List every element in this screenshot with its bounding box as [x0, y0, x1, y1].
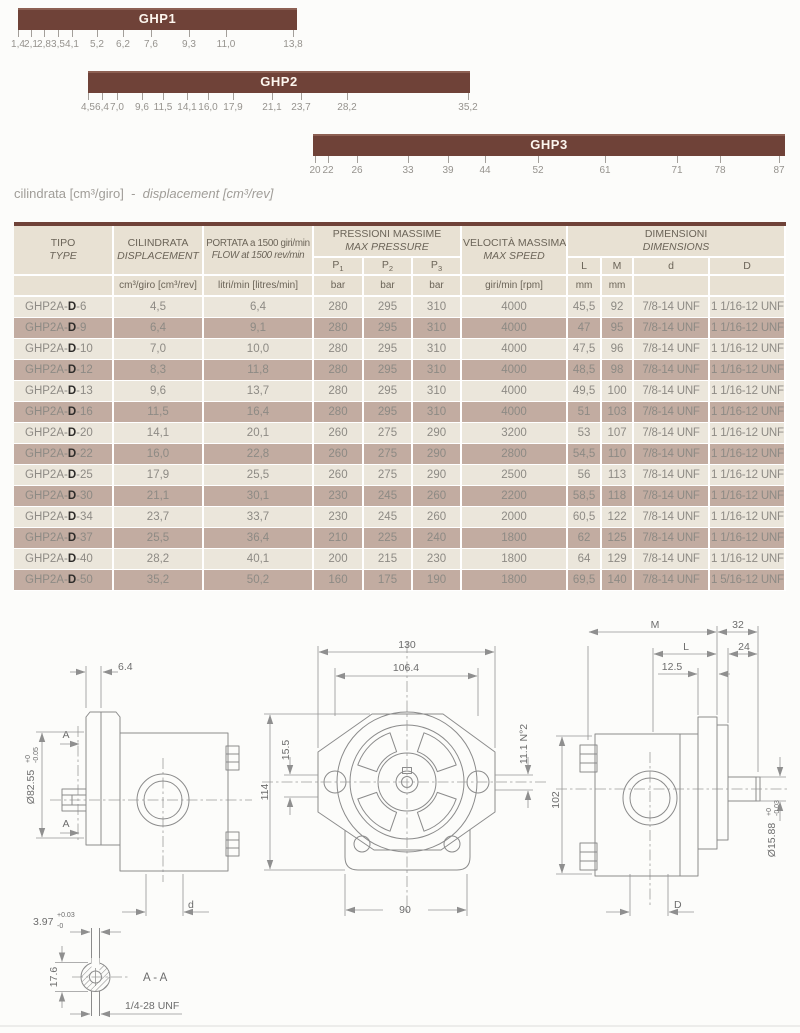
- cell-type: GHP2A-D-34: [14, 507, 114, 528]
- cell-flow: 16,4: [204, 402, 314, 423]
- spec-row-37: GHP2A-D-3725,536,42102252401800621257/8-…: [14, 528, 786, 549]
- cell-D: 1 1/16-12 UNF: [710, 297, 786, 318]
- cell-speed: 4000: [462, 297, 568, 318]
- cell-p1: 260: [314, 465, 364, 486]
- cell-disp: 4,5: [114, 297, 204, 318]
- header-cilindrata: CILINDRATADISPLACEMENT: [114, 226, 204, 276]
- cell-p1: 280: [314, 381, 364, 402]
- cell-p2: 245: [364, 486, 413, 507]
- ghp2-tick: [88, 93, 89, 100]
- cell-p2: 295: [364, 381, 413, 402]
- ghp2-tick: [142, 93, 143, 100]
- spec-row-40: GHP2A-D-4028,240,12002152301800641297/8-…: [14, 549, 786, 570]
- cell-disp: 23,7: [114, 507, 204, 528]
- cell-type: GHP2A-D-40: [14, 549, 114, 570]
- svg-text:Ø15.88: Ø15.88: [766, 823, 778, 858]
- svg-text:-0: -0: [57, 923, 63, 930]
- unit-M: mm: [602, 276, 634, 297]
- cell-p3: 260: [413, 486, 462, 507]
- header-tipo: TIPOTYPE: [14, 226, 114, 276]
- dim-15-5: 15.5: [280, 740, 292, 761]
- ghp2-tick: [187, 93, 188, 100]
- cell-p1: 230: [314, 486, 364, 507]
- ghp1-tick: [189, 30, 190, 37]
- cell-L: 69,5: [568, 570, 602, 591]
- ghp2-tick-label: 21,1: [262, 102, 281, 113]
- cell-type: GHP2A-D-12: [14, 360, 114, 381]
- ghp1-tick-label: 11,0: [217, 39, 236, 50]
- cell-M: 98: [602, 360, 634, 381]
- unit-empty-d: [634, 276, 710, 297]
- unit-velocita: giri/min [rpm]: [462, 276, 568, 297]
- ghp3-tick-label: 52: [532, 165, 543, 176]
- dim-3-97-label: 3.97: [33, 916, 54, 928]
- ghp3-tick-label: 71: [671, 165, 682, 176]
- cell-disp: 8,3: [114, 360, 204, 381]
- technical-drawings: A A 6.4 Ø82.55 +0 -0.05 d: [0, 612, 800, 1033]
- cell-flow: 22,8: [204, 444, 314, 465]
- ghp3-tick-label: 61: [599, 165, 610, 176]
- spec-row-20: GHP2A-D-2014,120,12602752903200531077/8-…: [14, 423, 786, 444]
- svg-text:+0.03: +0.03: [57, 912, 75, 919]
- cell-speed: 2500: [462, 465, 568, 486]
- ghp1-tick-label: 4,1: [65, 39, 79, 50]
- ghp1-tick-label: 9,3: [182, 39, 196, 50]
- ghp3-bar-title: GHP3: [313, 137, 785, 152]
- ghp1-tick: [58, 30, 59, 37]
- ghp1-tick-label: 6,2: [116, 39, 130, 50]
- cell-p1: 280: [314, 360, 364, 381]
- cell-p3: 310: [413, 360, 462, 381]
- cell-type: GHP2A-D-20: [14, 423, 114, 444]
- ghp1-tick: [226, 30, 227, 37]
- ghp1-range-bar: GHP1: [18, 8, 297, 30]
- ghp3-tick: [357, 156, 358, 163]
- cell-disp: 7,0: [114, 339, 204, 360]
- unit-p2: bar: [364, 276, 413, 297]
- cell-d: 7/8-14 UNF: [634, 381, 710, 402]
- cell-p3: 290: [413, 444, 462, 465]
- cell-p2: 275: [364, 465, 413, 486]
- ghp2-tick-label: 28,2: [337, 102, 356, 113]
- dim-130-label: 130: [398, 639, 416, 651]
- header-portata: PORTATA a 1500 giri/minFLOW at 1500 rev/…: [204, 226, 314, 276]
- ghp2-tick-label: 35,2: [458, 102, 477, 113]
- section-label-a-bottom: A: [62, 818, 69, 830]
- ghp1-tick-label: 7,6: [144, 39, 158, 50]
- ghp1-tick-label: 2,1: [24, 39, 38, 50]
- cell-p2: 275: [364, 444, 413, 465]
- cell-L: 49,5: [568, 381, 602, 402]
- cell-D: 1 1/16-12 UNF: [710, 360, 786, 381]
- dim-17-6: 17.6: [48, 967, 60, 988]
- ghp3-tick-label: 39: [442, 165, 453, 176]
- cell-type: GHP2A-D-16: [14, 402, 114, 423]
- cell-L: 54,5: [568, 444, 602, 465]
- ghp1-tick: [44, 30, 45, 37]
- ghp1-tick: [18, 30, 19, 37]
- section-title: A - A: [143, 972, 168, 984]
- cell-speed: 4000: [462, 360, 568, 381]
- cell-L: 64: [568, 549, 602, 570]
- cell-speed: 1800: [462, 570, 568, 591]
- cell-L: 60,5: [568, 507, 602, 528]
- pump-front-view: 130 106.4 15.5 114: [259, 639, 548, 916]
- cell-disp: 11,5: [114, 402, 204, 423]
- cell-disp: 6,4: [114, 318, 204, 339]
- spec-row-6: GHP2A-D-64,56,4280295310400045,5927/8-14…: [14, 297, 786, 318]
- cell-flow: 10,0: [204, 339, 314, 360]
- cell-type: GHP2A-D-22: [14, 444, 114, 465]
- cell-d: 7/8-14 UNF: [634, 507, 710, 528]
- ghp2-tick: [347, 93, 348, 100]
- cell-type: GHP2A-D-6: [14, 297, 114, 318]
- thread-label: 1/4-28 UNF: [125, 1000, 179, 1012]
- header-p3: P3: [413, 258, 462, 276]
- ghp2-tick-label: 14,1: [177, 102, 196, 113]
- cell-M: 129: [602, 549, 634, 570]
- cell-M: 107: [602, 423, 634, 444]
- header-pressioni: PRESSIONI MASSIMEMAX PRESSURE: [314, 226, 462, 258]
- cell-p1: 280: [314, 402, 364, 423]
- cell-M: 92: [602, 297, 634, 318]
- ghp3-tick-label: 22: [322, 165, 333, 176]
- cell-M: 100: [602, 381, 634, 402]
- header-p2: P2: [364, 258, 413, 276]
- cell-speed: 4000: [462, 339, 568, 360]
- dim-24-label: 24: [738, 641, 750, 653]
- cell-flow: 9,1: [204, 318, 314, 339]
- cell-L: 56: [568, 465, 602, 486]
- cell-d: 7/8-14 UNF: [634, 444, 710, 465]
- spec-table: TIPOTYPE CILINDRATADISPLACEMENT PORTATA …: [14, 222, 786, 591]
- ghp2-tick: [117, 93, 118, 100]
- cell-type: GHP2A-D-37: [14, 528, 114, 549]
- caption-italian: cilindrata [cm³/giro]: [14, 186, 124, 201]
- cell-d: 7/8-14 UNF: [634, 528, 710, 549]
- cell-disp: 25,5: [114, 528, 204, 549]
- ghp3-tick-label: 44: [479, 165, 490, 176]
- unit-portata: litri/min [litres/min]: [204, 276, 314, 297]
- cell-p3: 230: [413, 549, 462, 570]
- ghp3-tick: [315, 156, 316, 163]
- ghp3-tick-label: 20: [309, 165, 320, 176]
- cell-p1: 230: [314, 507, 364, 528]
- cell-p2: 175: [364, 570, 413, 591]
- cell-d: 7/8-14 UNF: [634, 423, 710, 444]
- svg-text:102: 102: [550, 791, 562, 809]
- ghp1-tick: [31, 30, 32, 37]
- cell-L: 51: [568, 402, 602, 423]
- cell-flow: 6,4: [204, 297, 314, 318]
- ghp1-tick-label: 5,2: [90, 39, 104, 50]
- ghp2-tick: [301, 93, 302, 100]
- cell-p2: 295: [364, 318, 413, 339]
- ghp1-tick: [97, 30, 98, 37]
- cell-L: 58,5: [568, 486, 602, 507]
- cell-p1: 160: [314, 570, 364, 591]
- cell-type: GHP2A-D-13: [14, 381, 114, 402]
- dim-M-label: M: [651, 619, 660, 631]
- cell-L: 53: [568, 423, 602, 444]
- caption-separator: -: [127, 186, 142, 201]
- cell-speed: 4000: [462, 318, 568, 339]
- ghp2-tick: [208, 93, 209, 100]
- cell-L: 45,5: [568, 297, 602, 318]
- ghp2-tick: [233, 93, 234, 100]
- cell-L: 48,5: [568, 360, 602, 381]
- dim-102: 102: [550, 791, 562, 809]
- header-D: D: [710, 258, 786, 276]
- cell-speed: 3200: [462, 423, 568, 444]
- cell-type: GHP2A-D-25: [14, 465, 114, 486]
- cell-D: 1 5/16-12 UNF: [710, 570, 786, 591]
- cell-p2: 245: [364, 507, 413, 528]
- unit-p1: bar: [314, 276, 364, 297]
- cell-L: 62: [568, 528, 602, 549]
- cell-p2: 295: [364, 297, 413, 318]
- cell-p1: 260: [314, 423, 364, 444]
- cell-flow: 25,5: [204, 465, 314, 486]
- spec-row-16: GHP2A-D-1611,516,42802953104000511037/8-…: [14, 402, 786, 423]
- cell-flow: 40,1: [204, 549, 314, 570]
- svg-text:11.1 N°2: 11.1 N°2: [518, 724, 530, 764]
- ghp1-tick: [151, 30, 152, 37]
- cell-M: 113: [602, 465, 634, 486]
- cell-M: 125: [602, 528, 634, 549]
- dim-dia-15-88: Ø15.88 +0 -0.03: [766, 800, 781, 857]
- spec-row-34: GHP2A-D-3423,733,7230245260200060,51227/…: [14, 507, 786, 528]
- cell-disp: 17,9: [114, 465, 204, 486]
- svg-text:-0.03: -0.03: [774, 800, 781, 816]
- section-label-a-top: A: [62, 729, 69, 741]
- cell-type: GHP2A-D-10: [14, 339, 114, 360]
- ghp1-tick-label: 1,4: [11, 39, 25, 50]
- header-d: d: [634, 258, 710, 276]
- cell-M: 95: [602, 318, 634, 339]
- dim-12-5-label: 12.5: [662, 661, 683, 673]
- header-p1: P1: [314, 258, 364, 276]
- cell-p3: 310: [413, 381, 462, 402]
- cell-flow: 11,8: [204, 360, 314, 381]
- cell-p2: 215: [364, 549, 413, 570]
- ghp3-tick: [720, 156, 721, 163]
- dim-L-label: L: [683, 641, 689, 653]
- cell-D: 1 1/16-12 UNF: [710, 402, 786, 423]
- unit-cilindrata: cm³/giro [cm³/rev]: [114, 276, 204, 297]
- cell-D: 1 1/16-12 UNF: [710, 465, 786, 486]
- cell-p3: 310: [413, 297, 462, 318]
- cell-p3: 310: [413, 318, 462, 339]
- spec-row-9: GHP2A-D-96,49,1280295310400047957/8-14 U…: [14, 318, 786, 339]
- cell-M: 96: [602, 339, 634, 360]
- cell-D: 1 1/16-12 UNF: [710, 381, 786, 402]
- cell-d: 7/8-14 UNF: [634, 339, 710, 360]
- dim-90-label: 90: [399, 904, 411, 916]
- pump-side-view-left: A A 6.4 Ø82.55 +0 -0.05 d: [25, 661, 252, 916]
- ghp2-tick: [272, 93, 273, 100]
- ghp1-tick-label: 2,8: [37, 39, 51, 50]
- cell-disp: 35,2: [114, 570, 204, 591]
- header-M: M: [602, 258, 634, 276]
- cell-flow: 36,4: [204, 528, 314, 549]
- ghp1-tick: [293, 30, 294, 37]
- displacement-range-bars: GHP11,42,12,83,54,15,26,27,69,311,013,8G…: [0, 0, 800, 210]
- cell-p3: 260: [413, 507, 462, 528]
- datasheet-page: GHP11,42,12,83,54,15,26,27,69,311,013,8G…: [0, 0, 800, 1033]
- spec-row-50: GHP2A-D-5035,250,2160175190180069,51407/…: [14, 570, 786, 591]
- ghp3-tick-label: 87: [773, 165, 784, 176]
- cell-D: 1 1/16-12 UNF: [710, 486, 786, 507]
- cell-p3: 190: [413, 570, 462, 591]
- ghp2-tick-label: 7,0: [110, 102, 124, 113]
- ghp3-tick-label: 33: [402, 165, 413, 176]
- cell-disp: 28,2: [114, 549, 204, 570]
- ghp3-tick-label: 78: [714, 165, 725, 176]
- dim-6-4-label: 6.4: [118, 661, 133, 673]
- dim-114: 114: [259, 783, 271, 800]
- cell-disp: 21,1: [114, 486, 204, 507]
- ghp2-tick-label: 23,7: [291, 102, 310, 113]
- cell-d: 7/8-14 UNF: [634, 570, 710, 591]
- cell-D: 1 1/16-12 UNF: [710, 549, 786, 570]
- header-dimensioni: DIMENSIONIDIMENSIONS: [568, 226, 786, 258]
- spec-row-12: GHP2A-D-128,311,8280295310400048,5987/8-…: [14, 360, 786, 381]
- spec-row-10: GHP2A-D-107,010,0280295310400047,5967/8-…: [14, 339, 786, 360]
- ghp3-tick: [677, 156, 678, 163]
- cell-flow: 13,7: [204, 381, 314, 402]
- unit-L: mm: [568, 276, 602, 297]
- pump-side-view-right: M 32 L 24 12.5 102: [550, 619, 788, 916]
- ghp2-tick-label: 9,6: [135, 102, 149, 113]
- cell-disp: 9,6: [114, 381, 204, 402]
- cell-L: 47: [568, 318, 602, 339]
- cell-d: 7/8-14 UNF: [634, 402, 710, 423]
- ghp2-tick-label: 11,5: [154, 102, 173, 113]
- cell-speed: 2000: [462, 507, 568, 528]
- spec-row-13: GHP2A-D-139,613,7280295310400049,51007/8…: [14, 381, 786, 402]
- cell-M: 122: [602, 507, 634, 528]
- ghp1-tick: [123, 30, 124, 37]
- cell-speed: 4000: [462, 402, 568, 423]
- svg-text:17.6: 17.6: [48, 967, 60, 988]
- ghp1-tick-label: 13,8: [283, 39, 302, 50]
- cell-M: 118: [602, 486, 634, 507]
- ghp1-tick: [72, 30, 73, 37]
- ghp1-tick-label: 3,5: [51, 39, 65, 50]
- dim-d-label: d: [188, 899, 194, 911]
- cell-D: 1 1/16-12 UNF: [710, 528, 786, 549]
- cell-p3: 290: [413, 465, 462, 486]
- spec-row-30: GHP2A-D-3021,130,1230245260220058,51187/…: [14, 486, 786, 507]
- dim-106-4-label: 106.4: [393, 662, 419, 674]
- ghp2-tick-label: 6,4: [95, 102, 109, 113]
- cell-d: 7/8-14 UNF: [634, 297, 710, 318]
- ghp2-bar-title: GHP2: [88, 74, 470, 89]
- cell-D: 1 1/16-12 UNF: [710, 318, 786, 339]
- cell-p2: 275: [364, 423, 413, 444]
- svg-text:114: 114: [259, 783, 271, 800]
- cell-p3: 290: [413, 423, 462, 444]
- cell-speed: 4000: [462, 381, 568, 402]
- cell-type: GHP2A-D-9: [14, 318, 114, 339]
- cell-p1: 280: [314, 339, 364, 360]
- ghp3-tick: [448, 156, 449, 163]
- ghp3-tick: [779, 156, 780, 163]
- cell-speed: 1800: [462, 528, 568, 549]
- cell-disp: 16,0: [114, 444, 204, 465]
- header-L: L: [568, 258, 602, 276]
- cell-flow: 30,1: [204, 486, 314, 507]
- cell-p2: 295: [364, 339, 413, 360]
- dim-dia-82-55: Ø82.55 +0 -0.05: [25, 747, 40, 804]
- cell-type: GHP2A-D-30: [14, 486, 114, 507]
- spec-row-25: GHP2A-D-2517,925,52602752902500561137/8-…: [14, 465, 786, 486]
- cell-D: 1 1/16-12 UNF: [710, 444, 786, 465]
- ghp2-tick: [163, 93, 164, 100]
- cell-speed: 2200: [462, 486, 568, 507]
- cell-D: 1 1/16-12 UNF: [710, 339, 786, 360]
- cell-d: 7/8-14 UNF: [634, 486, 710, 507]
- displacement-caption: cilindrata [cm³/giro] - displacement [cm…: [14, 186, 273, 201]
- cell-p3: 240: [413, 528, 462, 549]
- svg-text:+0: +0: [766, 808, 773, 816]
- dim-32-label: 32: [732, 619, 744, 631]
- ghp1-bar-title: GHP1: [18, 11, 297, 26]
- ghp2-tick: [468, 93, 469, 100]
- cell-M: 103: [602, 402, 634, 423]
- cell-disp: 14,1: [114, 423, 204, 444]
- svg-text:Ø82.55: Ø82.55: [25, 770, 37, 805]
- cell-p1: 280: [314, 318, 364, 339]
- cell-speed: 2800: [462, 444, 568, 465]
- ghp2-tick-label: 17,9: [223, 102, 242, 113]
- cell-flow: 50,2: [204, 570, 314, 591]
- cell-p3: 310: [413, 402, 462, 423]
- unit-empty-D: [710, 276, 786, 297]
- cell-flow: 33,7: [204, 507, 314, 528]
- svg-text:+0: +0: [25, 755, 32, 763]
- caption-english: displacement [cm³/rev]: [143, 186, 274, 201]
- ghp3-tick: [485, 156, 486, 163]
- cell-M: 140: [602, 570, 634, 591]
- cell-d: 7/8-14 UNF: [634, 360, 710, 381]
- ghp3-tick-label: 26: [351, 165, 362, 176]
- cell-M: 110: [602, 444, 634, 465]
- dim-11-1: 11.1 N°2: [518, 724, 530, 764]
- svg-text:-0.05: -0.05: [33, 747, 40, 763]
- ghp3-tick: [538, 156, 539, 163]
- spec-row-22: GHP2A-D-2216,022,8260275290280054,51107/…: [14, 444, 786, 465]
- cell-flow: 20,1: [204, 423, 314, 444]
- ghp3-tick: [408, 156, 409, 163]
- ghp3-range-bar: GHP3: [313, 134, 785, 156]
- cell-p2: 295: [364, 360, 413, 381]
- spec-table-body: GHP2A-D-64,56,4280295310400045,5927/8-14…: [14, 297, 786, 591]
- shaft-section-detail: 3.97 +0.03 -0 17.6 A - A 1/4-28 UNF: [33, 912, 182, 1016]
- cell-D: 1 1/16-12 UNF: [710, 423, 786, 444]
- cell-D: 1 1/16-12 UNF: [710, 507, 786, 528]
- cell-d: 7/8-14 UNF: [634, 549, 710, 570]
- cell-p2: 225: [364, 528, 413, 549]
- cell-p1: 200: [314, 549, 364, 570]
- header-velocita: VELOCITÀ MASSIMAMAX SPEED: [462, 226, 568, 276]
- cell-speed: 1800: [462, 549, 568, 570]
- cell-p3: 310: [413, 339, 462, 360]
- ghp2-tick-label: 4,5: [81, 102, 95, 113]
- ghp3-tick: [605, 156, 606, 163]
- cell-L: 47,5: [568, 339, 602, 360]
